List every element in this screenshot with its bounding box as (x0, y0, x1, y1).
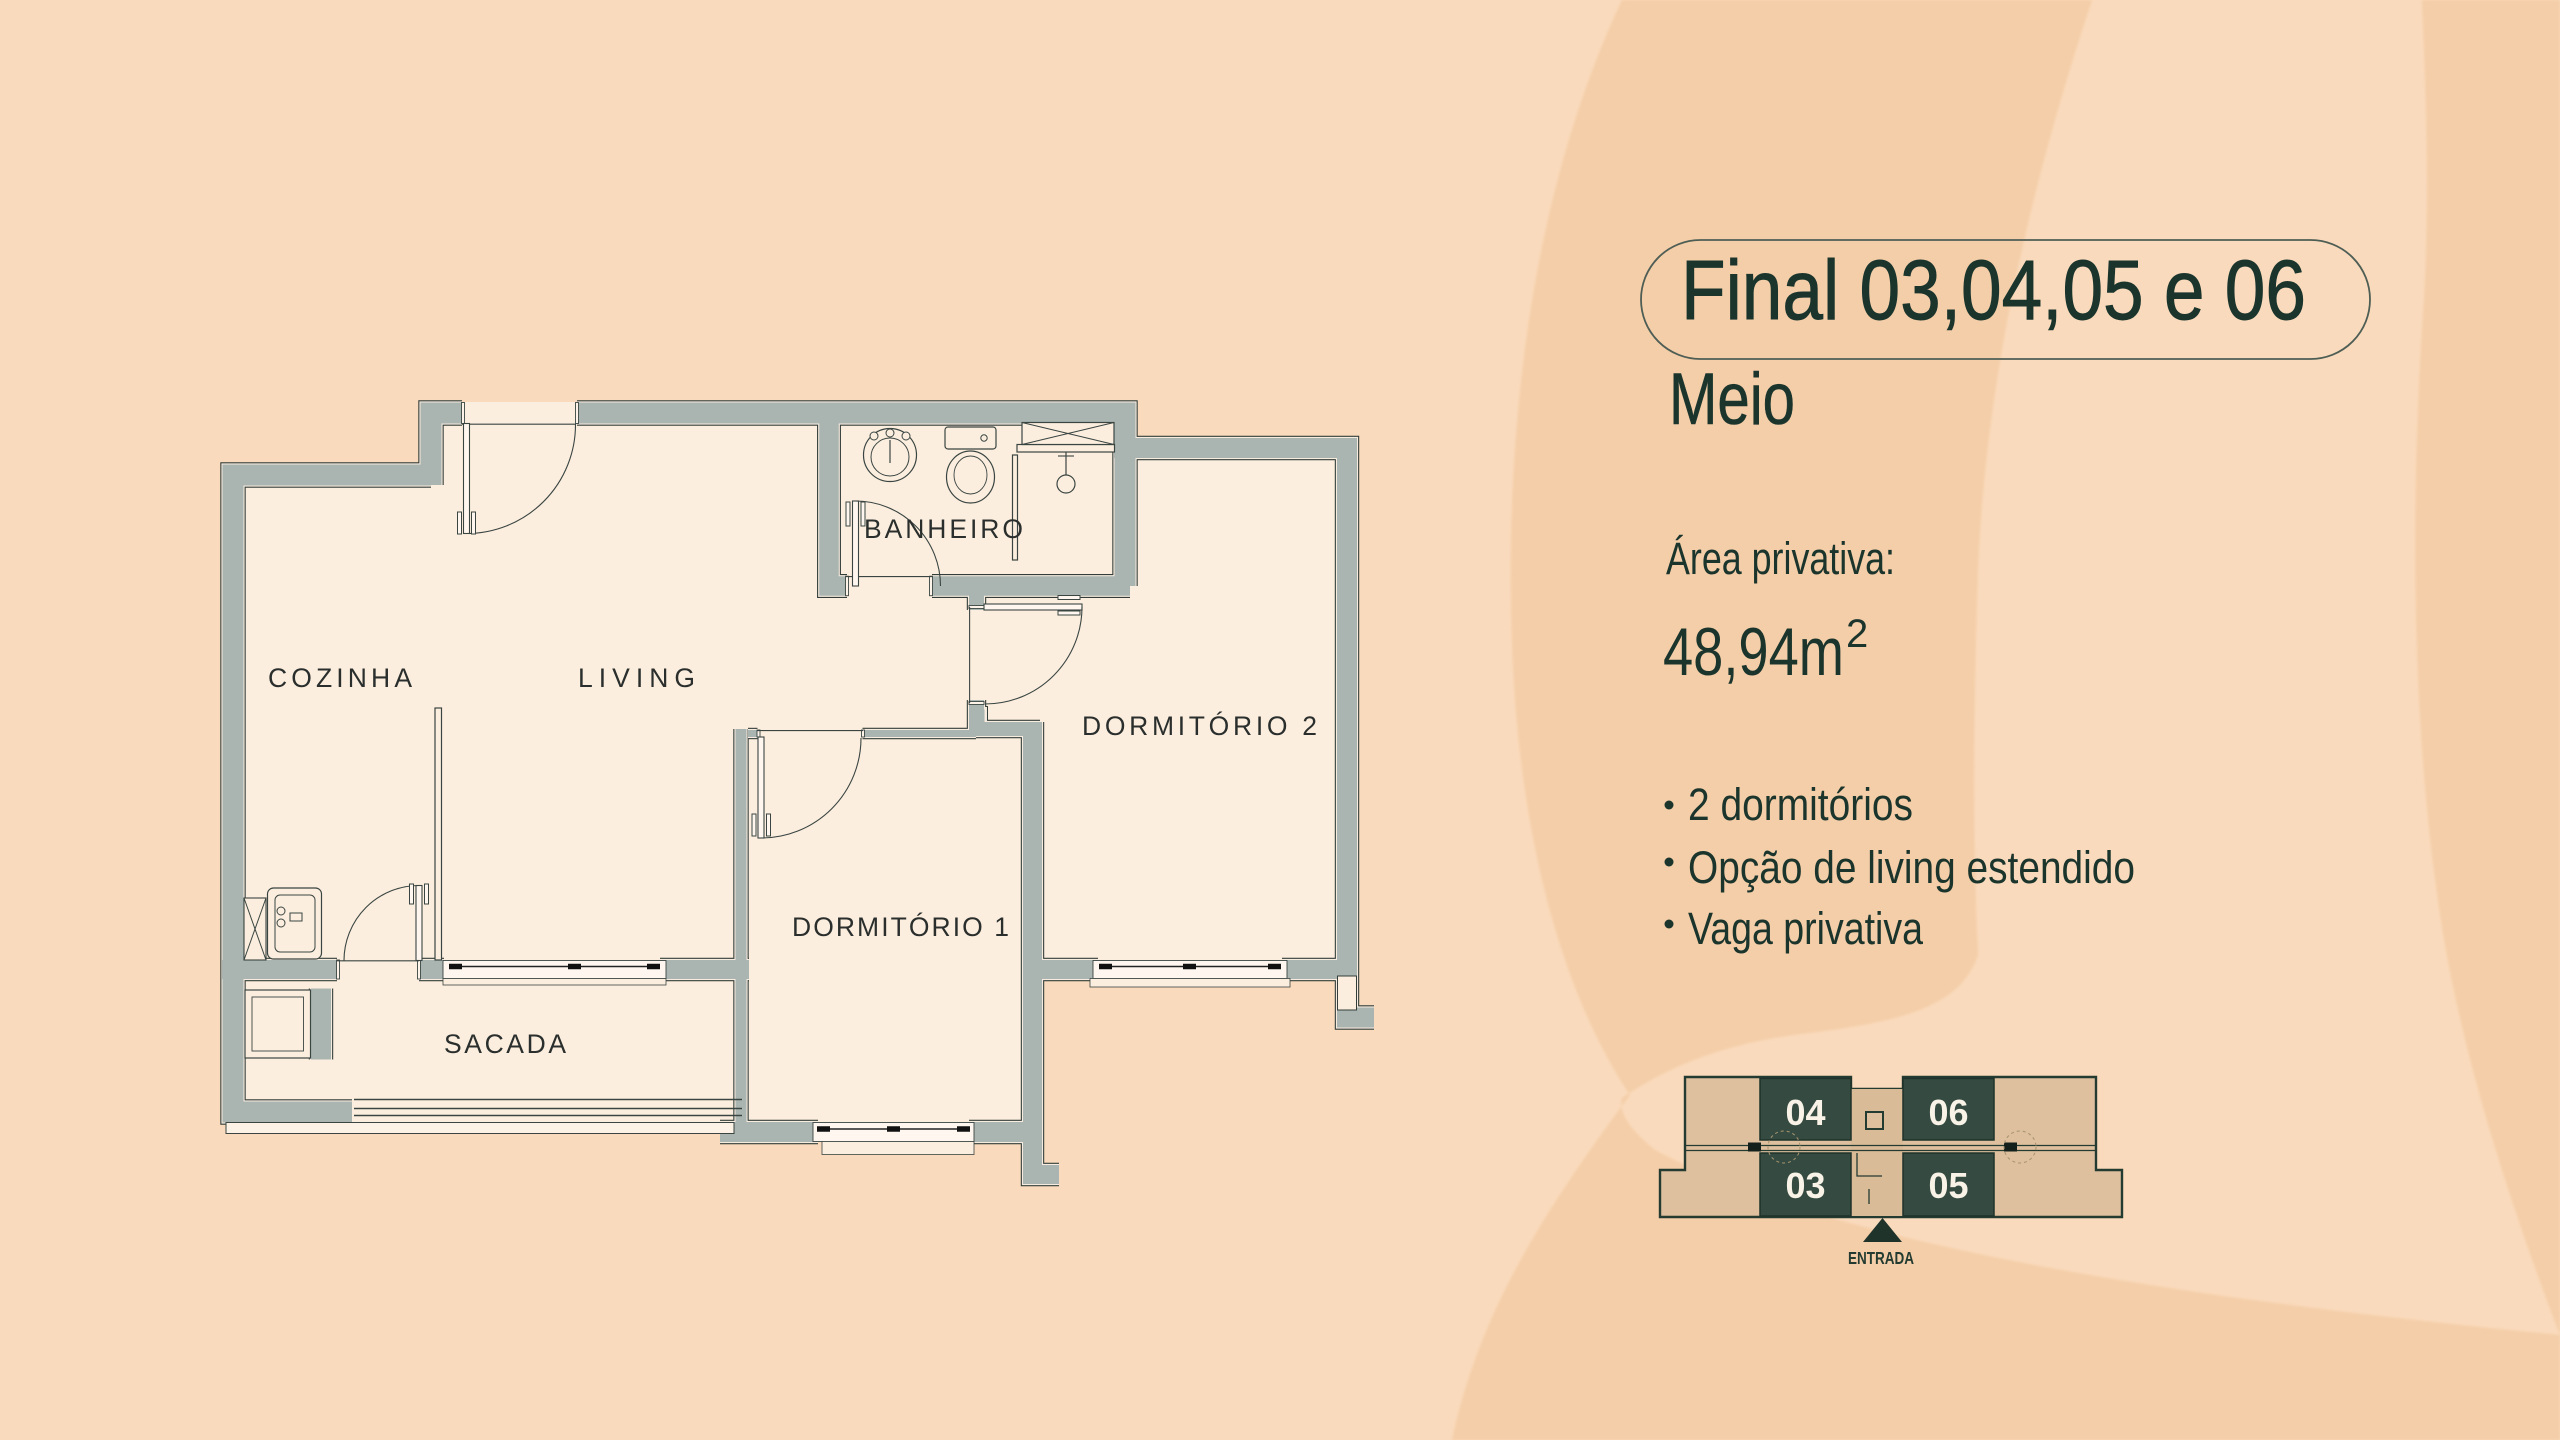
svg-text:Final 03,04,05 e 06: Final 03,04,05 e 06 (1681, 243, 2306, 337)
svg-text:2: 2 (1846, 612, 1868, 656)
svg-text:06: 06 (1928, 1092, 1968, 1133)
svg-text:04: 04 (1785, 1092, 1825, 1133)
svg-text:DORMITÓRIO 1: DORMITÓRIO 1 (792, 912, 1009, 942)
svg-text:2 dormitórios: 2 dormitórios (1688, 779, 1913, 830)
svg-text:48,94m: 48,94m (1663, 614, 1844, 690)
svg-text:05: 05 (1928, 1165, 1968, 1206)
svg-text:Opção de living estendido: Opção de living estendido (1688, 842, 2135, 893)
svg-text:Meio: Meio (1669, 359, 1795, 440)
svg-text:03: 03 (1785, 1165, 1825, 1206)
svg-text:DORMITÓRIO 2: DORMITÓRIO 2 (1082, 711, 1317, 741)
svg-text:ENTRADA: ENTRADA (1848, 1248, 1914, 1268)
svg-text:BANHEIRO: BANHEIRO (864, 514, 1023, 544)
svg-text:Vaga privativa: Vaga privativa (1688, 903, 1924, 954)
svg-text:Área privativa:: Área privativa: (1666, 533, 1895, 584)
